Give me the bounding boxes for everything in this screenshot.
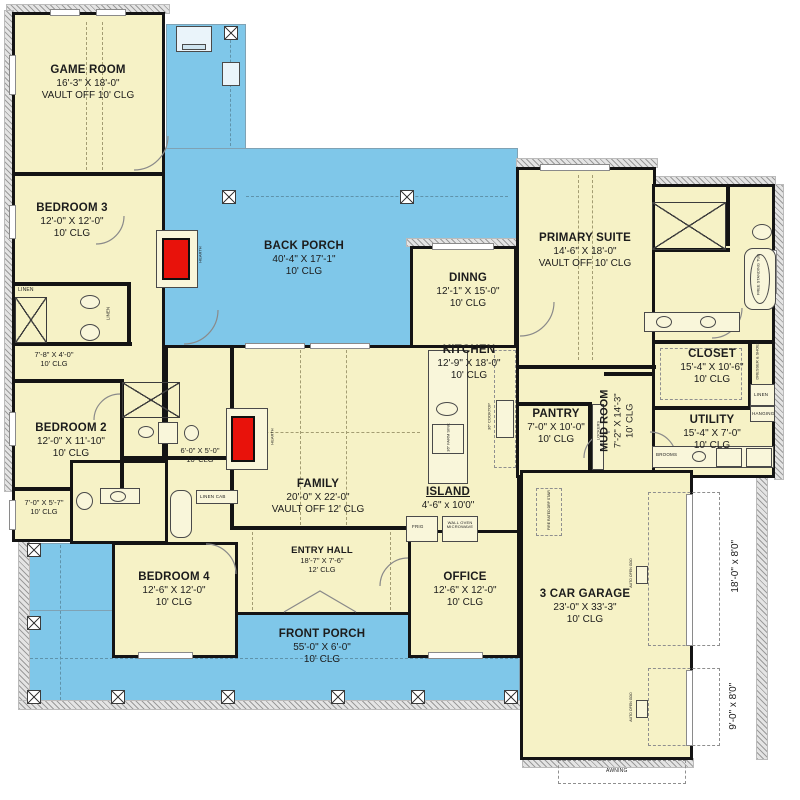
shower-jack-jill [122,382,180,418]
hanging-label: HANGING [752,411,774,416]
linen-label: LINEN [754,392,768,397]
dryer [746,448,772,467]
auto-open-label: AUTO OPEN GDO [629,684,633,730]
garage-door-18-label: 18'-0" x 8'0" [730,512,743,620]
room-label-closet-2: 6'-0" X 5'-0"10' CLG [180,446,219,464]
garage-door-opener [636,700,648,718]
wall-oven-label: WALL OVEN MICROWAVE [444,521,476,530]
dresser-shoes-label: DRESSER & SHOES [755,336,760,386]
lockers-label: LOCKERS [596,409,601,453]
room-label-bedroom-4: BEDROOM 412'-6" X 12'-0"10' CLG [138,571,209,609]
sink [138,426,154,438]
room-label-utility: UTILITY15'-4" X 7'-0"10' CLG [683,414,741,452]
garage-door-opener [636,566,648,584]
sink [80,295,100,309]
vanity-cabinet [158,422,178,444]
shower-bath-3 [15,297,47,343]
fire-stair-label: FIRE RATED DRP STAIR [547,485,551,535]
toilet [184,425,199,441]
porch-post [224,26,238,40]
porch-post [221,690,235,704]
sink [700,316,716,328]
floor-plan: GAME ROOM16'-3" X 18'-0"VAULT OFF 10' CL… [0,0,800,800]
room-label-garage: 3 CAR GARAGE23'-0" X 33'-3"10' CLG [540,588,631,626]
toilet-primary [752,224,772,240]
awning-label: AWNING [606,768,628,774]
room-label-dining: DINNG12'-1" X 15'-0"10' CLG [436,272,499,310]
grill-vent [182,44,206,50]
room-label-bedroom-2: BEDROOM 212'-0" X 11'-10"10' CLG [35,422,106,460]
toilet [80,324,100,341]
frig-label: FRIG [412,524,424,529]
room-label-kitchen: KITCHEN12'-9" X 18'-0"10' CLG [437,344,500,382]
island-sink [436,402,458,416]
farm-sink-label: 36" FARM SINK [446,418,451,458]
porch-post [504,690,518,704]
porch-post [27,543,41,557]
linen-label: LINEN [106,294,111,334]
porch-post [27,690,41,704]
linen-cab-label: LINEN CAB [200,494,226,499]
room-label-island: ISLAND4'-6" x 10'0" [422,486,475,512]
porch-post [27,616,41,630]
room-label-bedroom-3: BEDROOM 312'-0" X 12'-0"10' CLG [36,202,107,240]
tub [170,490,192,538]
garage-door-9-label: 9'-0" x 8'0" [728,656,741,756]
sink [110,491,126,502]
hearth-label: HEARTH [270,415,275,459]
room-label-office: OFFICE12'-6" X 12'-0"10' CLG [433,571,496,609]
auto-open-label: AUTO OPEN GDO [629,550,633,596]
room-label-closet: CLOSET15'-4" X 10'-6"10' CLG [680,348,743,386]
room-label-hall: 7'-8" X 4'-0"10' CLG [34,350,73,368]
fridge [406,516,438,542]
room-label-mud-room: MUD ROOM7'-2" X 14'-3"10' CLG [598,361,636,481]
room-label-flex: 7'-0" X 5'-7"10' CLG [24,498,63,516]
cooktop [496,400,514,438]
utility-sink [692,451,706,462]
outdoor-fridge [222,62,240,86]
linen-label: LINEN [18,287,34,293]
brooms-label: BROOMS [656,452,677,457]
porch-post [222,190,236,204]
room-label-family: FAMILY20'-0" X 22'-0"VAULT OFF 12' CLG [272,478,365,516]
porch-post [331,690,345,704]
sink [656,316,672,328]
porch-post [111,690,125,704]
room-label-pantry: PANTRY7'-0" X 10'-0"10' CLG [527,408,585,446]
porch-post [411,690,425,704]
fireplace-porch [162,238,190,280]
shower-primary [652,202,726,250]
room-label-back-porch: BACK PORCH40'-4" X 17'-1"10' CLG [264,240,344,278]
toilet [76,492,93,510]
free-standing-tub-label: FREE STANDING TUB [756,247,761,303]
door-arcs [0,0,800,800]
porch-post [400,190,414,204]
cooktop-label: 36" COOKTOP [487,396,492,438]
fireplace-family [231,416,255,462]
room-label-front-porch: FRONT PORCH55'-0" X 6'-0"10' CLG [279,628,366,666]
room-label-entry-hall: ENTRY HALL18'-7" X 7'-6"12' CLG [291,545,353,574]
room-label-primary-suite: PRIMARY SUITE14'-6" X 18'-0"VAULT OFF 10… [539,232,632,270]
room-label-game-room: GAME ROOM16'-3" X 18'-0"VAULT OFF 10' CL… [42,64,135,102]
hearth-label: HEARTH [198,233,203,277]
